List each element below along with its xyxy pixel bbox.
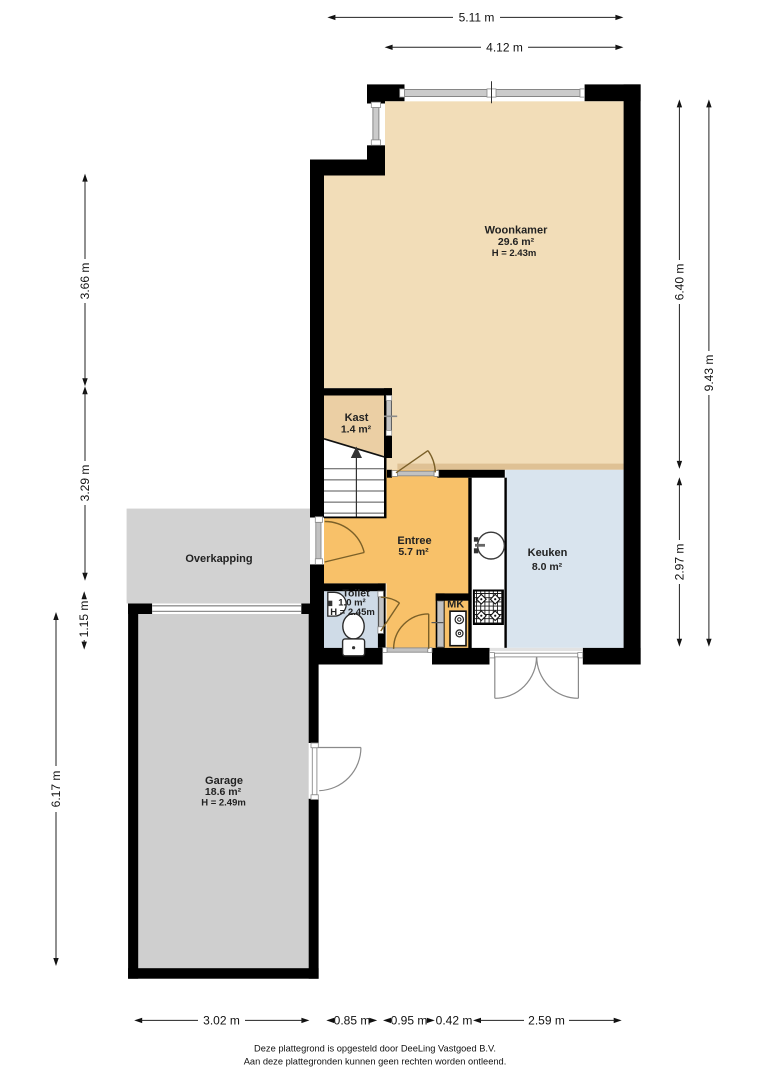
svg-text:1.4 m²: 1.4 m² (341, 424, 372, 436)
svg-text:2.97 m: 2.97 m (672, 544, 686, 581)
svg-text:3.29 m: 3.29 m (78, 465, 92, 502)
svg-text:Overkapping: Overkapping (185, 553, 252, 565)
svg-text:Aan deze plattegronden kunnen: Aan deze plattegronden kunnen geen recht… (244, 1057, 507, 1067)
svg-text:1.15 m: 1.15 m (77, 601, 91, 638)
svg-text:0.42 m: 0.42 m (436, 1014, 473, 1028)
svg-text:0.85 m: 0.85 m (334, 1014, 371, 1028)
svg-text:18.6 m²: 18.6 m² (205, 786, 242, 798)
svg-text:5.11 m: 5.11 m (459, 11, 495, 25)
svg-text:2.59 m: 2.59 m (528, 1014, 565, 1028)
svg-text:H = 2.45m: H = 2.45m (330, 607, 375, 618)
svg-text:3.66 m: 3.66 m (78, 263, 92, 300)
svg-text:4.12 m: 4.12 m (486, 41, 523, 55)
svg-text:Deze plattegrond is opgesteld: Deze plattegrond is opgesteld door DeeLi… (254, 1044, 496, 1054)
svg-text:6.17 m: 6.17 m (49, 771, 63, 808)
svg-text:MK: MK (447, 599, 464, 611)
svg-text:H = 2.49m: H = 2.49m (201, 798, 246, 809)
svg-text:3.02 m: 3.02 m (203, 1014, 240, 1028)
svg-text:9.43 m: 9.43 m (702, 355, 716, 392)
svg-text:8.0 m²: 8.0 m² (532, 561, 563, 573)
svg-text:Keuken: Keuken (528, 547, 568, 559)
svg-text:6.40 m: 6.40 m (672, 264, 686, 301)
svg-text:0.95 m: 0.95 m (391, 1014, 428, 1028)
svg-text:Woonkamer: Woonkamer (485, 225, 548, 237)
svg-text:5.7 m²: 5.7 m² (398, 546, 429, 558)
svg-text:H = 2.43m: H = 2.43m (492, 248, 537, 259)
svg-text:Kast: Kast (345, 412, 369, 424)
svg-text:29.6 m²: 29.6 m² (498, 236, 535, 248)
